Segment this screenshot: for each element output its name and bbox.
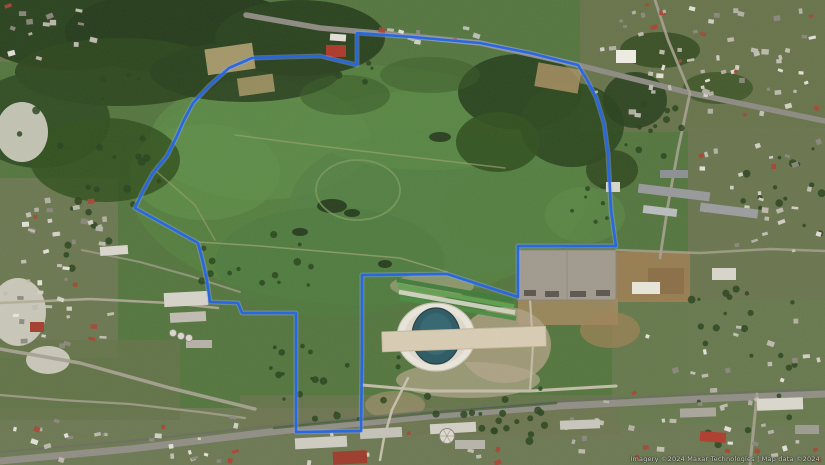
satellite-map-view[interactable]: Imagery ©2024 Maxar Technologies | Map d…: [0, 0, 825, 465]
map-canvas: [0, 0, 825, 465]
